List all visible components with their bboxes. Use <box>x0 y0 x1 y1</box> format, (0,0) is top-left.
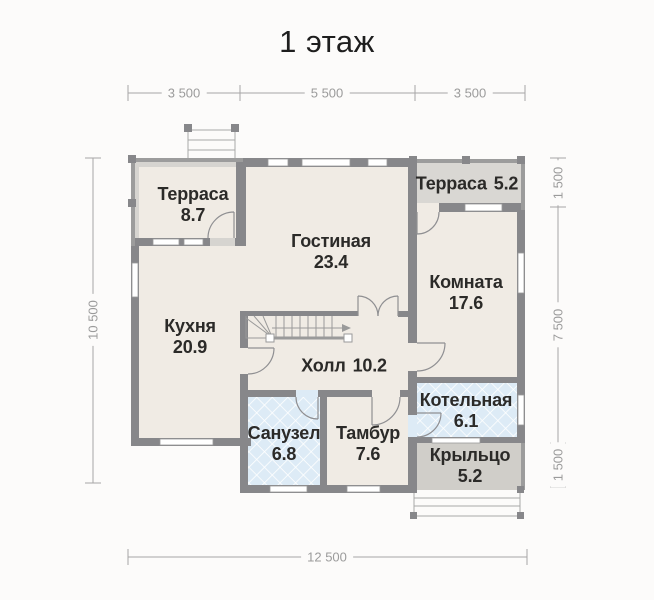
room-label-bathroom: Санузел 6.8 <box>248 423 321 465</box>
room-name: Терраса <box>158 184 229 205</box>
room-label-terrace-tr: Терраса 5.2 <box>416 173 518 194</box>
dim-label-bottom: 12 500 <box>301 550 353 565</box>
dim-label-top-right: 3 500 <box>448 86 493 101</box>
dim-label-top-mid: 5 500 <box>305 86 350 101</box>
room-label-porch: Крыльцо 5.2 <box>430 445 511 487</box>
entry-steps <box>184 124 239 158</box>
room-name: Комната <box>429 272 502 293</box>
room-area: 10.2 <box>353 355 387 376</box>
room-label-living: Гостиная 23.4 <box>291 231 371 273</box>
dim-label-right-bottom: 1 500 <box>551 443 566 488</box>
room-name: Терраса <box>416 173 487 194</box>
room-area: 20.9 <box>173 337 207 358</box>
room-label-kitchen: Кухня 20.9 <box>164 316 216 358</box>
room-area: 7.6 <box>356 444 380 465</box>
room-area: 23.4 <box>314 252 348 273</box>
dim-label-top-left: 3 500 <box>162 86 207 101</box>
room-name: Крыльцо <box>430 445 511 466</box>
dim-label-right-mid: 7 500 <box>551 303 566 348</box>
porch-steps <box>410 486 524 519</box>
room-name: Котельная <box>420 390 512 411</box>
room-label-boiler: Котельная 6.1 <box>420 390 512 432</box>
room-area: 5.2 <box>458 466 482 487</box>
room-name: Тамбур <box>336 423 400 444</box>
room-label-terrace-tl: Терраса 8.7 <box>158 184 229 226</box>
room-area: 6.8 <box>272 444 296 465</box>
room-name: Гостиная <box>291 231 371 252</box>
room-area: 6.1 <box>454 411 478 432</box>
room-area: 8.7 <box>181 205 205 226</box>
dim-label-left: 10 500 <box>86 294 101 346</box>
floor-plan-page: 1 этаж <box>0 0 654 600</box>
room-name: Санузел <box>248 423 321 444</box>
room-area: 17.6 <box>449 293 483 314</box>
room-label-room: Комната 17.6 <box>429 272 502 314</box>
room-label-hall: Холл 10.2 <box>301 355 387 376</box>
room-label-vestibule: Тамбур 7.6 <box>336 423 400 465</box>
room-name: Холл <box>301 355 345 376</box>
room-name: Кухня <box>164 316 216 337</box>
dim-label-right-top: 1 500 <box>551 161 566 206</box>
room-area: 5.2 <box>494 173 518 194</box>
